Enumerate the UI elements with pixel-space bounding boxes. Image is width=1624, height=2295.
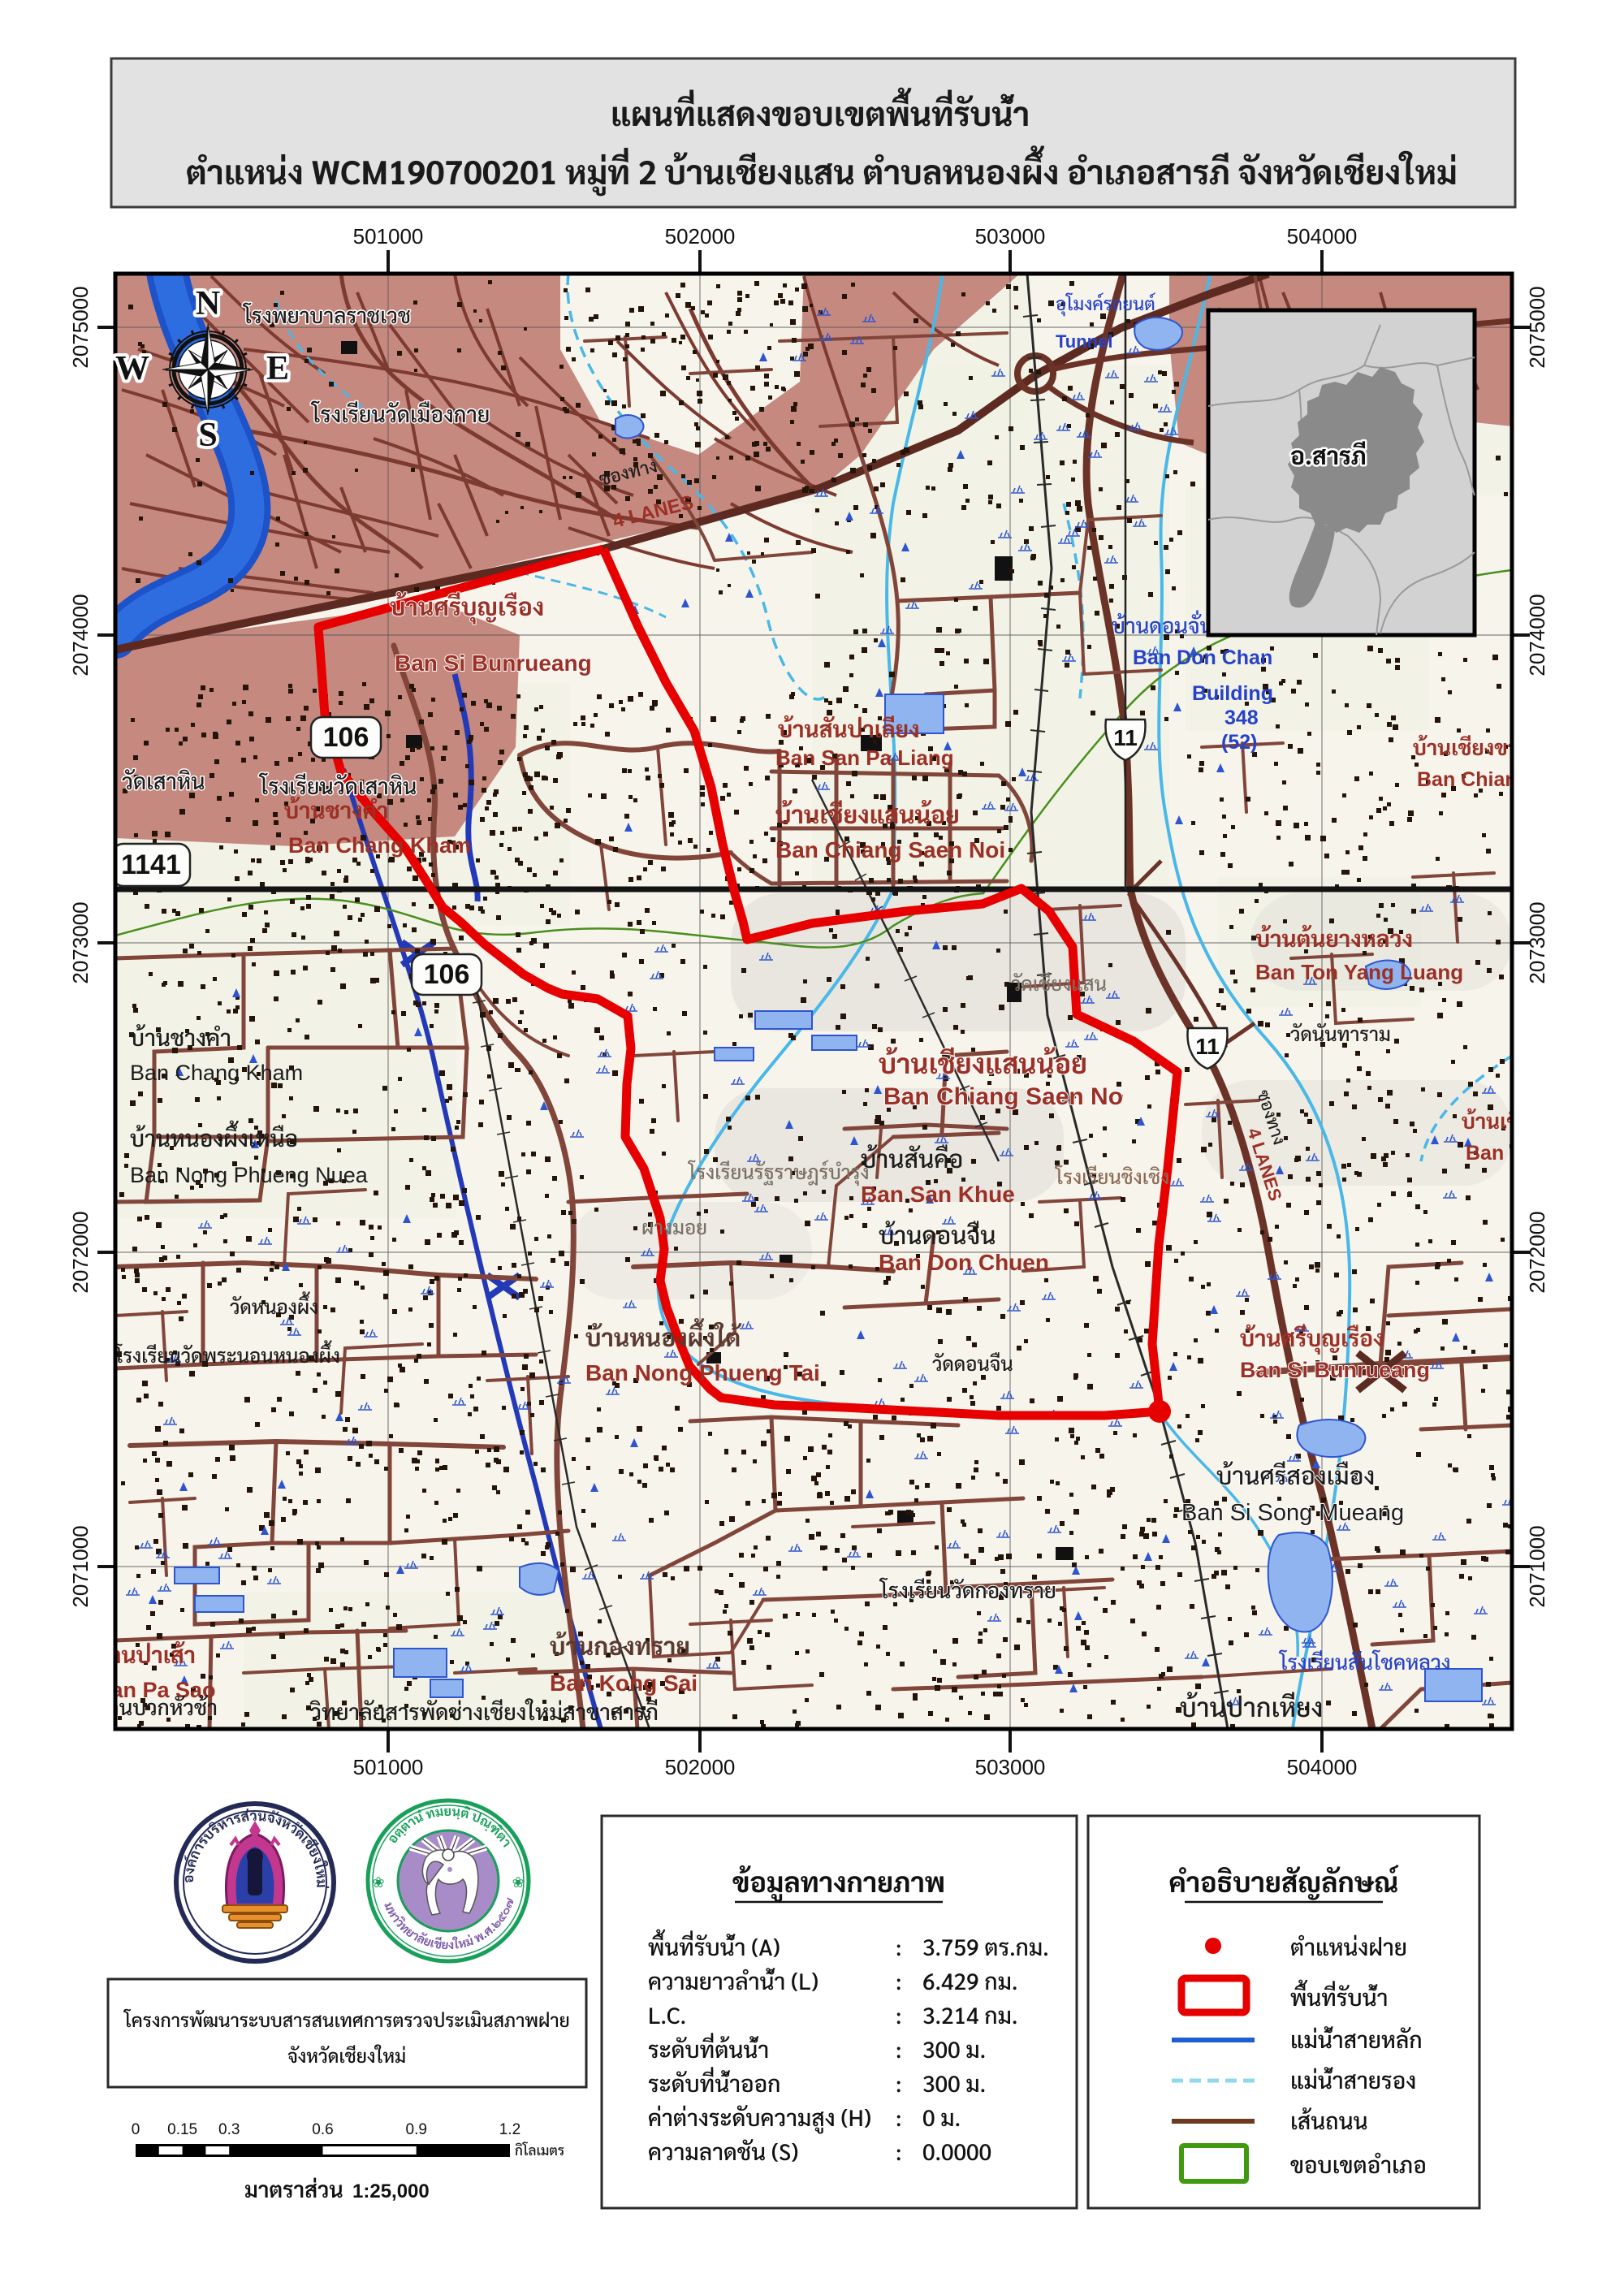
svg-text:Tunnel: Tunnel <box>1056 331 1112 352</box>
svg-text:Ban Chang Kham: Ban Chang Kham <box>130 1061 303 1085</box>
svg-text:106: 106 <box>323 722 369 753</box>
svg-text:0.9: 0.9 <box>406 2121 427 2138</box>
svg-text:2071000: 2071000 <box>1525 1525 1549 1607</box>
svg-text:Ban San Pa Liang: Ban San Pa Liang <box>775 746 954 770</box>
svg-text:2073000: 2073000 <box>1525 901 1549 983</box>
svg-text:Ban Si Song Mueang: Ban Si Song Mueang <box>1181 1500 1404 1526</box>
svg-text:11: 11 <box>1195 1034 1220 1059</box>
svg-text:0: 0 <box>132 2121 140 2138</box>
svg-text:106: 106 <box>424 959 470 990</box>
svg-text:502000: 502000 <box>665 224 736 249</box>
svg-text:S: S <box>198 417 217 454</box>
svg-text:2073000: 2073000 <box>68 901 93 983</box>
svg-text:Building: Building <box>1192 682 1273 705</box>
svg-text:503000: 503000 <box>975 224 1046 249</box>
svg-text:Ban Kong Sai: Ban Kong Sai <box>550 1670 698 1696</box>
svg-text:503000: 503000 <box>975 1755 1046 1779</box>
svg-text:2075000: 2075000 <box>68 286 93 368</box>
svg-text:501000: 501000 <box>353 1755 424 1779</box>
svg-text:Ban Nong Phueng Tai: Ban Nong Phueng Tai <box>585 1360 820 1385</box>
svg-text:(52): (52) <box>1221 731 1257 754</box>
svg-text:11: 11 <box>1113 725 1138 750</box>
svg-text:2074000: 2074000 <box>1525 594 1549 676</box>
svg-text:Ban Nong Phueng Nuea: Ban Nong Phueng Nuea <box>130 1163 369 1187</box>
svg-text:Ban Si Bunrueang: Ban Si Bunrueang <box>395 650 592 676</box>
svg-text:Ban Chiang Saen Noi: Ban Chiang Saen Noi <box>775 837 1005 862</box>
svg-text:1141: 1141 <box>121 849 181 880</box>
svg-text:Ban Don Chuen: Ban Don Chuen <box>879 1250 1049 1275</box>
svg-text:0.6: 0.6 <box>312 2121 333 2138</box>
svg-text:❀: ❀ <box>512 1874 524 1891</box>
svg-text:0.3: 0.3 <box>218 2121 240 2138</box>
svg-text:348: 348 <box>1224 707 1259 729</box>
svg-text:Ban San Khue: Ban San Khue <box>861 1182 1015 1207</box>
svg-text:Ban Chang Kham: Ban Chang Kham <box>288 833 471 858</box>
svg-text:504000: 504000 <box>1287 1755 1358 1779</box>
svg-text:Ban Chiang Saen No: Ban Chiang Saen No <box>883 1083 1123 1110</box>
svg-text:504000: 504000 <box>1287 224 1358 249</box>
svg-text:Ban Ton Yang Luang: Ban Ton Yang Luang <box>1255 960 1463 984</box>
svg-text:2074000: 2074000 <box>68 594 93 676</box>
svg-text:2072000: 2072000 <box>68 1211 93 1293</box>
svg-text:2075000: 2075000 <box>1525 286 1549 368</box>
svg-text:2071000: 2071000 <box>68 1525 93 1607</box>
svg-text:501000: 501000 <box>353 224 424 249</box>
svg-text:1.2: 1.2 <box>499 2121 520 2138</box>
svg-text:Ban Si Bunrueang: Ban Si Bunrueang <box>1240 1358 1430 1382</box>
svg-text:❀: ❀ <box>372 1874 384 1891</box>
svg-text:Ban Don Chan: Ban Don Chan <box>1133 646 1272 669</box>
svg-text:2072000: 2072000 <box>1525 1211 1549 1293</box>
svg-text:0.15: 0.15 <box>167 2121 197 2138</box>
svg-text:502000: 502000 <box>665 1755 736 1779</box>
svg-text:1:25,000: 1:25,000 <box>352 2180 430 2202</box>
svg-text:N: N <box>196 285 220 322</box>
svg-text:W: W <box>115 350 149 387</box>
svg-text:E: E <box>266 350 289 387</box>
